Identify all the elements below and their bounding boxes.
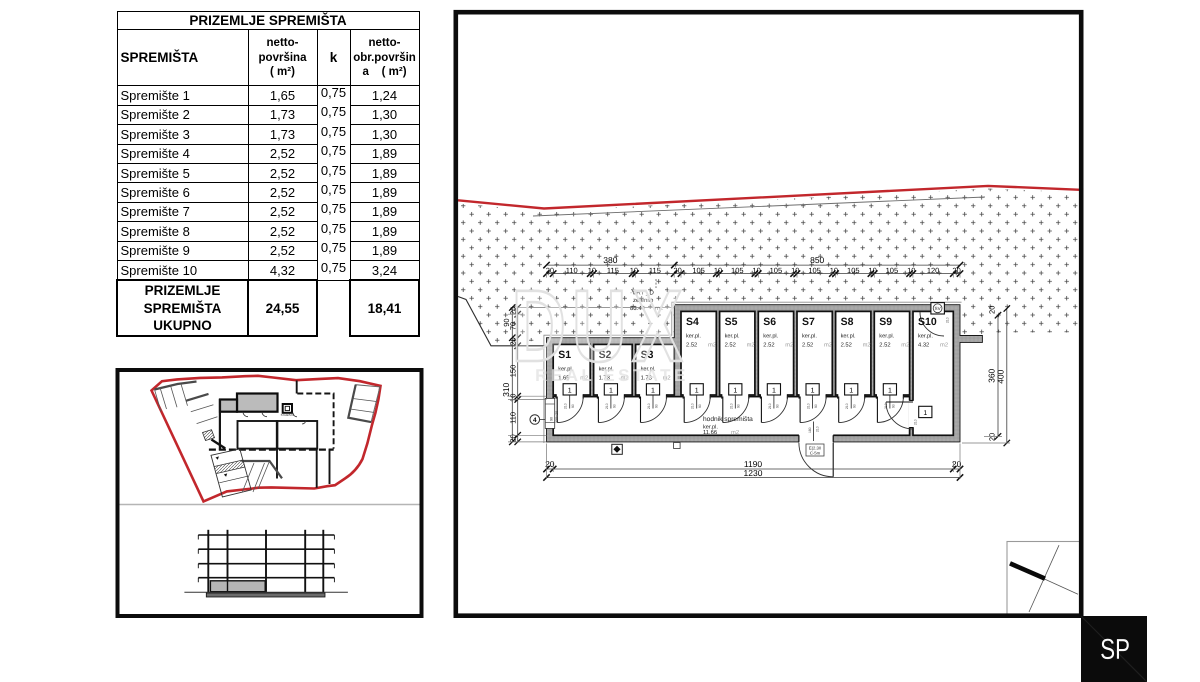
svg-text:m2: m2 [940, 341, 948, 348]
svg-text:210: 210 [605, 403, 609, 409]
svg-text:ker.pl.: ker.pl. [918, 332, 933, 339]
svg-text:210: 210 [564, 403, 568, 409]
svg-text:90: 90 [775, 404, 779, 408]
svg-text:SV: SV [935, 306, 942, 311]
svg-text:20: 20 [988, 306, 997, 314]
svg-text:105: 105 [731, 266, 744, 275]
svg-text:90: 90 [571, 404, 575, 408]
svg-text:20: 20 [952, 266, 960, 275]
svg-text:10: 10 [714, 266, 722, 275]
svg-text:10: 10 [752, 266, 760, 275]
svg-text:10: 10 [791, 266, 799, 275]
svg-text:105: 105 [692, 266, 705, 275]
svg-text:1230: 1230 [744, 468, 763, 478]
svg-text:m2: m2 [901, 341, 909, 348]
svg-text:m2: m2 [785, 341, 793, 348]
svg-text:110: 110 [508, 412, 517, 424]
svg-text:210: 210 [729, 403, 733, 409]
svg-text:2.52: 2.52 [879, 341, 890, 348]
svg-text:1: 1 [923, 410, 927, 417]
svg-text:m2: m2 [824, 341, 832, 348]
svg-text:105: 105 [886, 266, 899, 275]
svg-text:90: 90 [737, 404, 741, 408]
svg-text:2.52: 2.52 [841, 341, 852, 348]
svg-text:10: 10 [508, 394, 517, 402]
svg-text:ker.pl.: ker.pl. [802, 332, 817, 339]
svg-text:210: 210 [647, 403, 651, 409]
svg-text:4.32: 4.32 [918, 341, 929, 348]
svg-text:400: 400 [995, 369, 1005, 383]
svg-text:105: 105 [847, 266, 860, 275]
svg-text:120: 120 [927, 266, 940, 275]
svg-text:10: 10 [907, 266, 915, 275]
svg-text:180: 180 [808, 427, 812, 433]
svg-text:10: 10 [830, 266, 838, 275]
svg-text:S7: S7 [802, 316, 815, 328]
svg-text:hodnik spremišta: hodnik spremišta [703, 416, 753, 423]
svg-text:90: 90 [654, 404, 658, 408]
svg-text:E(2.30: E(2.30 [809, 445, 822, 450]
svg-text:20: 20 [988, 433, 997, 441]
svg-text:380: 380 [603, 255, 617, 265]
svg-text:105: 105 [808, 266, 821, 275]
svg-text:S8: S8 [841, 316, 854, 328]
svg-text:850: 850 [810, 255, 824, 265]
svg-text:1: 1 [811, 387, 815, 394]
svg-text:C-5m: C-5m [810, 451, 821, 456]
svg-text:4: 4 [533, 417, 537, 424]
svg-text:ker.pl.: ker.pl. [841, 332, 856, 339]
svg-text:ker.pl.: ker.pl. [763, 332, 778, 339]
svg-text:90: 90 [853, 404, 857, 408]
svg-text:90: 90 [891, 404, 895, 408]
svg-text:m2: m2 [863, 341, 871, 348]
svg-text:130+20: 130+20 [555, 411, 559, 423]
svg-text:210: 210 [914, 419, 918, 425]
svg-text:1: 1 [888, 387, 892, 394]
svg-text:210: 210 [815, 426, 819, 432]
svg-text:1: 1 [733, 387, 737, 394]
svg-text:1: 1 [849, 387, 853, 394]
svg-text:S9: S9 [879, 316, 892, 328]
svg-text:210: 210 [946, 317, 950, 323]
svg-text:2.52: 2.52 [725, 341, 736, 348]
svg-text:m2: m2 [731, 429, 739, 436]
svg-text:90: 90 [612, 404, 616, 408]
svg-text:REAL ESTATE: REAL ESTATE [535, 366, 689, 385]
svg-text:90: 90 [698, 404, 702, 408]
svg-text:210: 210 [845, 403, 849, 409]
svg-text:S10: S10 [918, 316, 937, 328]
svg-text:ker.pl.: ker.pl. [879, 332, 894, 339]
svg-text:ker.pl.: ker.pl. [725, 332, 740, 339]
svg-text:90: 90 [814, 404, 818, 408]
svg-text:210: 210 [807, 403, 811, 409]
svg-text:210: 210 [691, 403, 695, 409]
svg-text:2.52: 2.52 [802, 341, 813, 348]
svg-text:S5: S5 [725, 316, 738, 328]
svg-text:11.66: 11.66 [703, 429, 717, 436]
svg-text:10: 10 [868, 266, 876, 275]
svg-text:105: 105 [770, 266, 783, 275]
svg-text:STUBIŠTE: STUBIŠTE [281, 413, 295, 417]
svg-text:2.52: 2.52 [763, 341, 774, 348]
svg-text:m2: m2 [747, 341, 755, 348]
svg-text:1: 1 [609, 387, 613, 394]
svg-text:m2: m2 [708, 341, 716, 348]
svg-text:1: 1 [695, 387, 699, 394]
svg-text:210: 210 [768, 403, 772, 409]
svg-text:1: 1 [651, 387, 655, 394]
svg-text:90: 90 [550, 417, 554, 421]
svg-text:1: 1 [568, 387, 572, 394]
svg-text:1: 1 [772, 387, 776, 394]
svg-text:S6: S6 [763, 316, 776, 328]
